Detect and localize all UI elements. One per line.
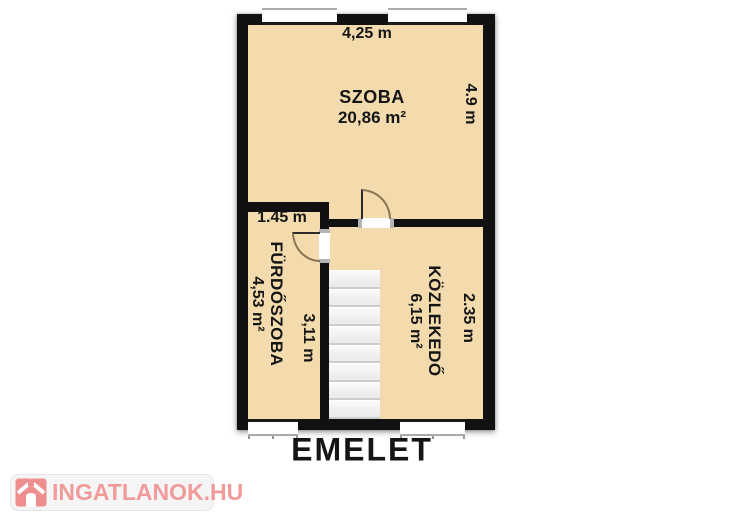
room-label-furdoszoba: FÜRDŐSZOBA 4,53 m² [248, 242, 286, 367]
dimension-kozlekedo-depth: 2.35 m [459, 293, 477, 343]
stair-step [329, 400, 380, 419]
room-label-kozlekedo: KÖZLEKEDŐ 6,15 m² [406, 265, 444, 376]
room-name: SZOBA [338, 87, 406, 108]
watermark-text: INGATLANOK.HU [52, 479, 243, 506]
interior-wall-hall-top [320, 219, 495, 227]
dimension-szoba-depth: 4.9 m [461, 84, 479, 125]
watermark-logo: INGATLANOK.HU [10, 474, 214, 511]
dimension-furdoszoba-depth: 3,11 m [299, 314, 317, 363]
dimension-szoba-width: 4,25 m [342, 25, 392, 43]
stair-step [329, 382, 380, 401]
stair-step [329, 363, 380, 382]
exterior-wall-left [237, 14, 248, 430]
door-swing-icon [361, 189, 391, 219]
door-opening-bathroom [319, 229, 330, 263]
window-glass [388, 8, 467, 25]
room-area: 4,53 m² [248, 242, 266, 367]
stair-step [329, 326, 380, 345]
room-area: 6,15 m² [406, 265, 424, 376]
floorplan: 4,25 m SZOBA 20,86 m² 4.9 m 1.45 m FÜRDŐ… [237, 14, 495, 430]
room-area: 20,86 m² [338, 108, 406, 128]
door-swing-icon [292, 232, 320, 262]
stairs [329, 270, 380, 419]
room-name: FÜRDŐSZOBA [266, 242, 286, 367]
dimension-furdoszoba-width: 1.45 m [257, 209, 307, 227]
stair-step [329, 289, 380, 308]
room-name: KÖZLEKEDŐ [424, 265, 444, 376]
floor-caption: EMELET [291, 432, 433, 469]
house-icon [15, 478, 47, 507]
window-glass [262, 8, 337, 25]
stair-step [329, 307, 380, 326]
door-opening-szoba [358, 218, 394, 228]
floorplan-image: 4,25 m SZOBA 20,86 m² 4.9 m 1.45 m FÜRDŐ… [0, 0, 730, 516]
stair-step [329, 345, 380, 364]
stair-step [329, 270, 380, 289]
room-label-szoba: SZOBA 20,86 m² [338, 87, 406, 127]
